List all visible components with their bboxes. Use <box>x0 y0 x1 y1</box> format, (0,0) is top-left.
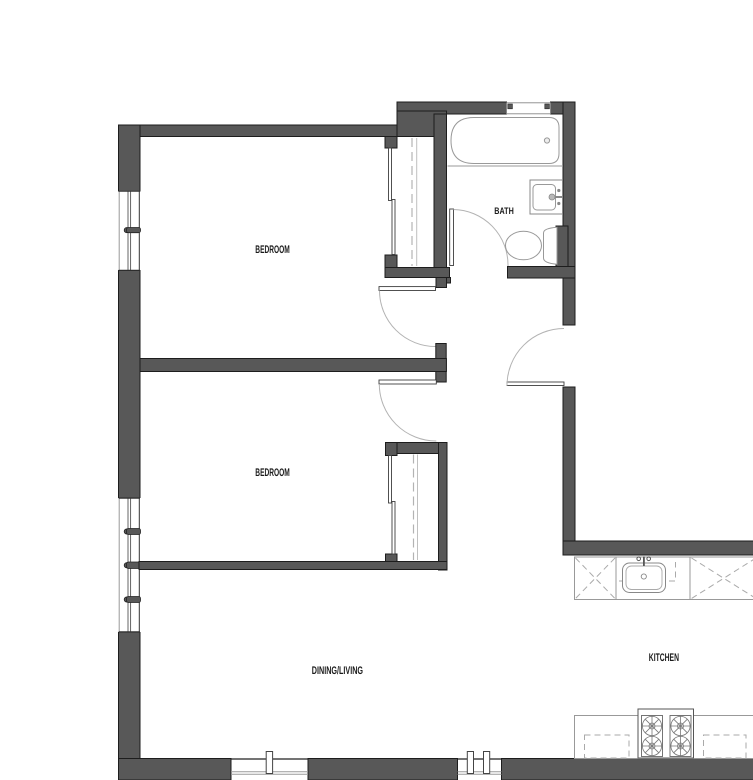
svg-text:KITCHEN: KITCHEN <box>649 652 679 664</box>
svg-text:BEDROOM: BEDROOM <box>255 244 289 256</box>
svg-text:BEDROOM: BEDROOM <box>255 467 289 479</box>
svg-text:DINING/LIVING: DINING/LIVING <box>312 665 363 677</box>
svg-text:BATH: BATH <box>494 206 514 217</box>
